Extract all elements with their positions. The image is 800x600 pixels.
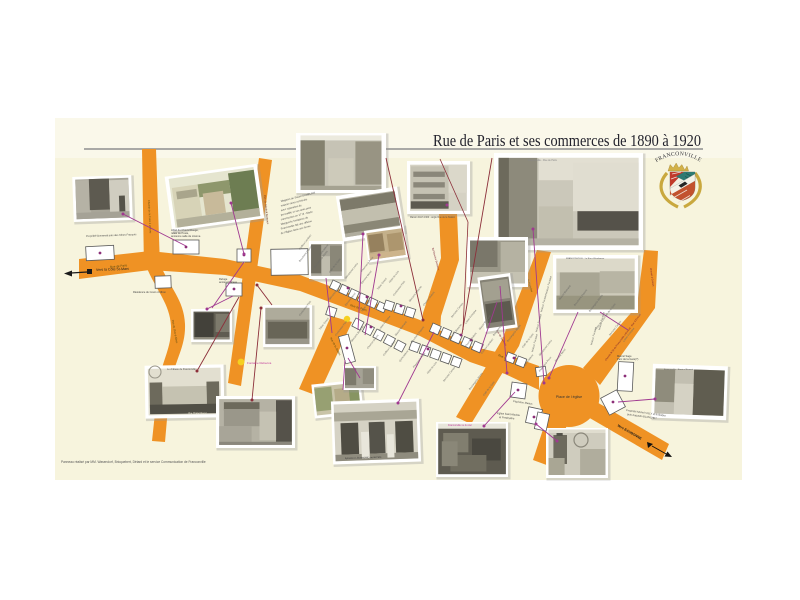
svg-text:ancien Château: ancien Château xyxy=(219,280,238,284)
svg-text:Parc de la Gare(?): Parc de la Gare(?) xyxy=(617,357,638,361)
svg-text:Vue Chalet Raoul: Vue Chalet Raoul xyxy=(188,412,207,415)
svg-text:ancienne salle de cinéma: ancienne salle de cinéma xyxy=(171,234,201,238)
svg-text:Rue de Paris et ses commerces: Rue de Paris et ses commerces de 1890 à … xyxy=(433,131,701,150)
svg-text:Franconville - Route d Ermont: Franconville - Route d Ermont xyxy=(664,368,693,371)
svg-text:Panneau réalisé par MM. Wasend: Panneau réalisé par MM. Wasendorf, Bricq… xyxy=(61,460,206,464)
svg-text:FRANCONVILLE - La Rue d Eaubon: FRANCONVILLE - La Rue d Eaubonne xyxy=(566,257,605,260)
svg-text:Franconville - Rue de Paris: Franconville - Rue de Paris xyxy=(528,159,558,162)
svg-text:Place de l église: Place de l église xyxy=(556,395,582,399)
svg-text:Résidence du Cours d Albon: Résidence du Cours d Albon xyxy=(133,290,166,294)
svg-text:Franconville vu du ciel: Franconville vu du ciel xyxy=(448,424,472,427)
svg-text:Fontaine Rebecca: Fontaine Rebecca xyxy=(247,361,272,365)
svg-text:Le château de Franconville: Le château de Franconville xyxy=(167,368,196,371)
svg-text:Maison Roch 1900 - angle Rue d: Maison Roch 1900 - angle Rue de la Stati… xyxy=(410,216,456,219)
